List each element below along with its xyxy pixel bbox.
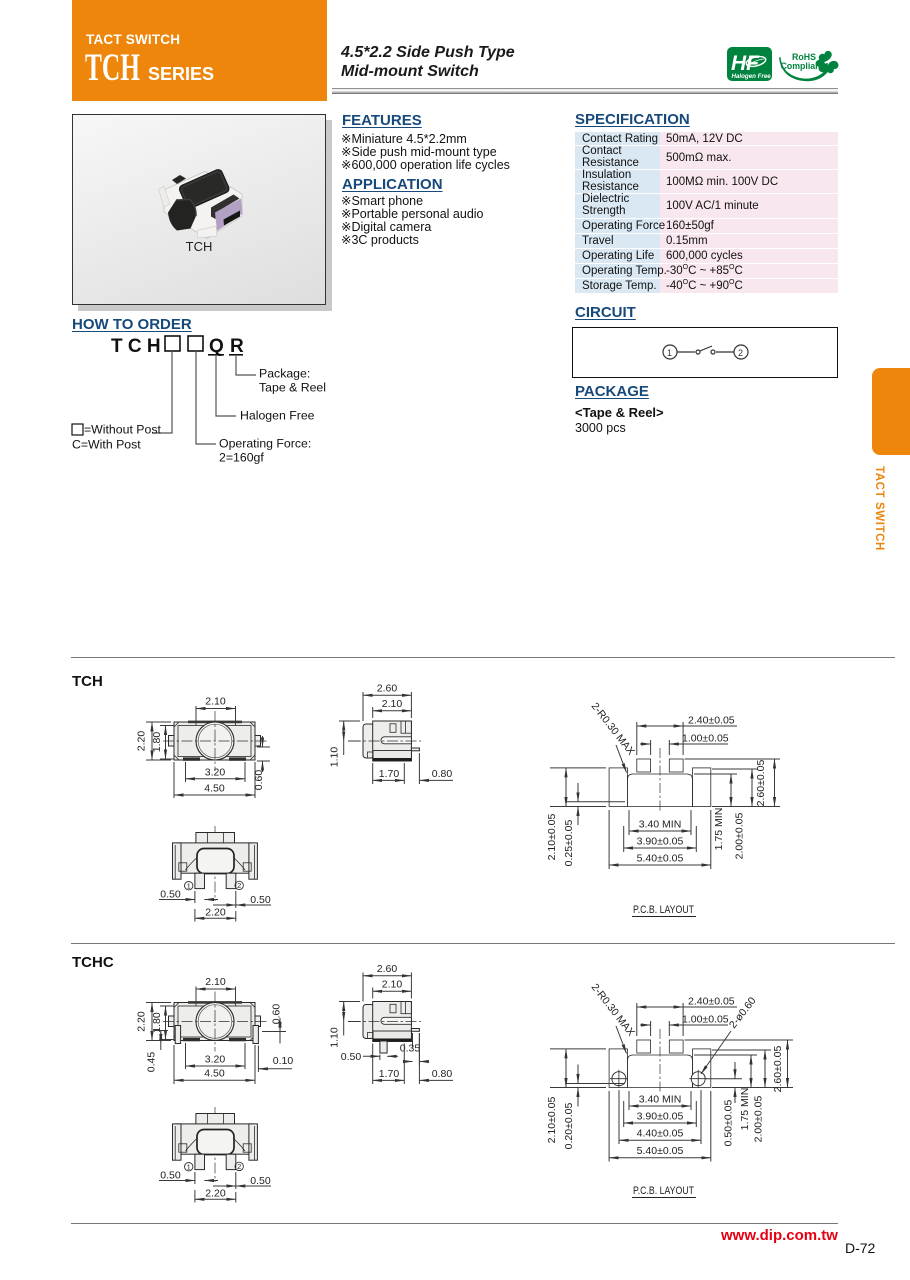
svg-text:1: 1 — [187, 1162, 191, 1171]
svg-text:2.20: 2.20 — [205, 1188, 226, 1200]
svg-text:C=With Post: C=With Post — [72, 438, 141, 452]
svg-text:2=160gf: 2=160gf — [219, 451, 264, 465]
svg-text:2-R0.30 MAX: 2-R0.30 MAX — [589, 700, 637, 757]
svg-text:1.00±0.05: 1.00±0.05 — [682, 733, 729, 745]
svg-text:Tape & Reel: Tape & Reel — [259, 381, 326, 395]
svg-text:4.50: 4.50 — [204, 1068, 225, 1080]
svg-text:0.50: 0.50 — [250, 894, 271, 906]
svg-text:1.75 MIN: 1.75 MIN — [713, 808, 725, 851]
svg-text:P.C.B. LAYOUT: P.C.B. LAYOUT — [633, 904, 694, 916]
svg-text:0.60: 0.60 — [271, 1004, 283, 1025]
svg-text:1.10: 1.10 — [329, 747, 341, 768]
svg-text:0.10: 0.10 — [273, 1055, 294, 1067]
svg-text:5.40±0.05: 5.40±0.05 — [637, 1145, 684, 1157]
svg-text:0.50±0.05: 0.50±0.05 — [723, 1100, 735, 1147]
svg-text:2.60: 2.60 — [377, 963, 398, 975]
svg-text:2.60±0.05: 2.60±0.05 — [755, 760, 767, 807]
svg-text:1.75 MIN: 1.75 MIN — [739, 1088, 751, 1131]
svg-text:R: R — [230, 336, 244, 357]
svg-text:0.80: 0.80 — [432, 768, 453, 780]
svg-text:0.50: 0.50 — [341, 1051, 362, 1063]
svg-text:1.10: 1.10 — [329, 1027, 341, 1048]
svg-text:1.80: 1.80 — [151, 732, 163, 753]
svg-text:3.90±0.05: 3.90±0.05 — [637, 836, 684, 848]
svg-text:1.70: 1.70 — [379, 1068, 400, 1080]
svg-text:5.40±0.05: 5.40±0.05 — [637, 853, 684, 865]
svg-text:3.20: 3.20 — [205, 767, 226, 779]
svg-text:3.90±0.05: 3.90±0.05 — [637, 1111, 684, 1123]
svg-text:3.20: 3.20 — [205, 1054, 226, 1066]
svg-text:2.10±0.05: 2.10±0.05 — [546, 814, 558, 861]
svg-text:0.60: 0.60 — [253, 770, 265, 791]
svg-text:T C H: T C H — [111, 336, 161, 357]
svg-text:2.10: 2.10 — [205, 696, 226, 708]
svg-text:1.70: 1.70 — [379, 768, 400, 780]
svg-text:3.40 MIN: 3.40 MIN — [639, 1094, 682, 1106]
svg-text:2: 2 — [237, 1162, 241, 1171]
svg-text:P.C.B. LAYOUT: P.C.B. LAYOUT — [633, 1185, 694, 1197]
svg-text:0.50: 0.50 — [160, 889, 181, 901]
svg-text:2.00±0.05: 2.00±0.05 — [753, 1096, 765, 1143]
svg-text:2.60: 2.60 — [377, 683, 398, 695]
svg-text:0.50: 0.50 — [160, 1170, 181, 1182]
svg-text:2: 2 — [237, 881, 241, 890]
svg-text:0.20±0.05: 0.20±0.05 — [563, 1103, 575, 1150]
svg-text:2.40±0.05: 2.40±0.05 — [688, 715, 735, 727]
svg-text:1.00±0.05: 1.00±0.05 — [682, 1014, 729, 1026]
svg-text:Halogen Free: Halogen Free — [240, 409, 315, 423]
svg-text:2.10: 2.10 — [382, 698, 403, 710]
svg-text:2.00±0.05: 2.00±0.05 — [734, 813, 746, 860]
svg-text:4.50: 4.50 — [204, 783, 225, 795]
svg-text:2.20: 2.20 — [136, 1011, 148, 1032]
svg-text:2.20: 2.20 — [136, 731, 148, 752]
svg-text:1: 1 — [187, 881, 191, 890]
svg-text:Q: Q — [209, 336, 224, 357]
svg-text:0.50: 0.50 — [250, 1175, 271, 1187]
svg-text:3.40 MIN: 3.40 MIN — [639, 819, 682, 831]
svg-text:0.25±0.05: 0.25±0.05 — [563, 820, 575, 867]
svg-text:2: 2 — [738, 348, 743, 358]
svg-text:1: 1 — [667, 348, 672, 358]
svg-text:2.60±0.05: 2.60±0.05 — [772, 1046, 784, 1093]
svg-text:Operating Force:: Operating Force: — [219, 437, 311, 451]
svg-text:2.10: 2.10 — [382, 979, 403, 991]
svg-text:2-R0.30 MAX: 2-R0.30 MAX — [589, 981, 637, 1038]
svg-text:4.40±0.05: 4.40±0.05 — [637, 1128, 684, 1140]
svg-text:2.10: 2.10 — [205, 976, 226, 988]
svg-text:2.40±0.05: 2.40±0.05 — [688, 996, 735, 1008]
svg-text:Package:: Package: — [259, 367, 310, 381]
svg-text:=Without Post: =Without Post — [84, 423, 161, 437]
svg-text:1.80: 1.80 — [151, 1012, 163, 1033]
svg-text:0.35: 0.35 — [400, 1043, 421, 1055]
svg-text:0.80: 0.80 — [432, 1068, 453, 1080]
svg-text:2.10±0.05: 2.10±0.05 — [546, 1097, 558, 1144]
svg-text:Halogen Free: Halogen Free — [732, 73, 772, 80]
svg-text:2.20: 2.20 — [205, 907, 226, 919]
svg-text:0.45: 0.45 — [146, 1052, 158, 1073]
